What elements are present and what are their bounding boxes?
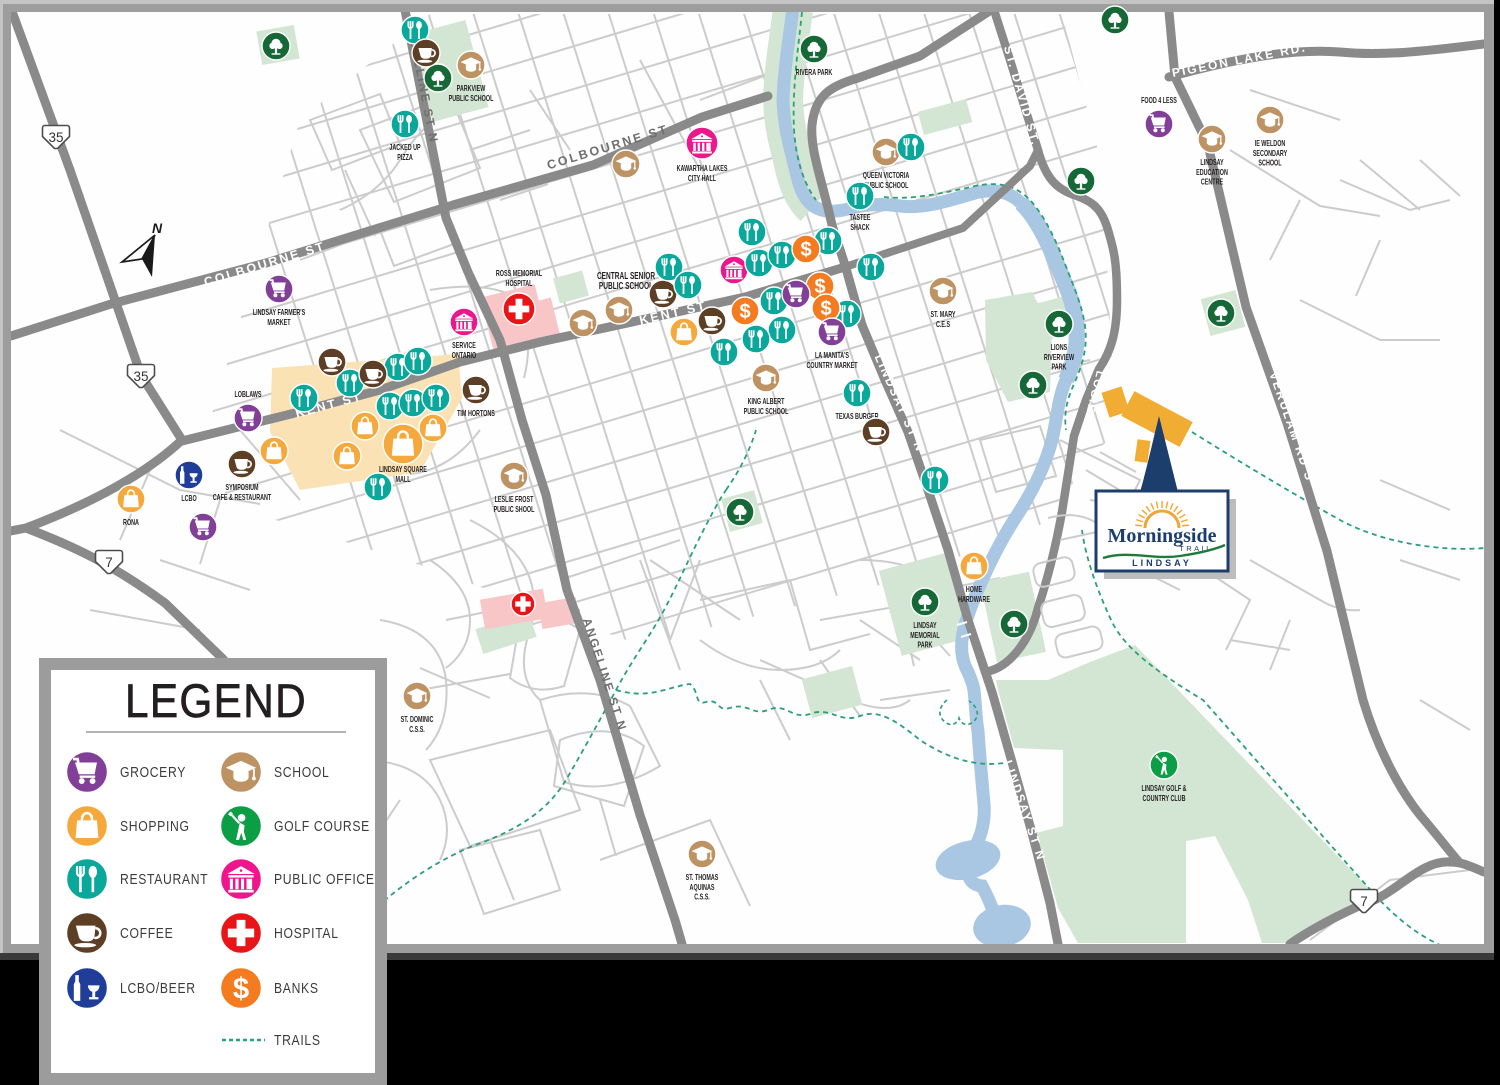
svg-text:PUBLIC OFFICE: PUBLIC OFFICE — [274, 871, 375, 887]
svg-text:ST. THOMAS: ST. THOMAS — [686, 873, 719, 883]
svg-text:ST. MARY: ST. MARY — [930, 310, 955, 320]
svg-text:LINDSAY: LINDSAY — [1132, 558, 1192, 568]
svg-text:JACKED UP: JACKED UP — [389, 143, 420, 153]
svg-text:BANKS: BANKS — [274, 980, 319, 996]
svg-text:MALL: MALL — [395, 475, 410, 485]
svg-text:LINDSAY: LINDSAY — [913, 621, 936, 631]
svg-text:COUNTRY MARKET: COUNTRY MARKET — [806, 361, 858, 371]
svg-text:C.S.S.: C.S.S. — [409, 725, 425, 735]
svg-text:35: 35 — [48, 130, 63, 145]
svg-text:LINDSAY FARMER'S: LINDSAY FARMER'S — [253, 308, 306, 318]
svg-text:PUBLIC SCHOOL: PUBLIC SCHOOL — [599, 279, 654, 291]
svg-text:PARK: PARK — [918, 640, 934, 650]
svg-text:LINDSAY SQUARE: LINDSAY SQUARE — [379, 465, 427, 475]
svg-text:MEMORIAL: MEMORIAL — [910, 631, 940, 641]
svg-text:FOOD 4 LESS: FOOD 4 LESS — [1141, 96, 1177, 106]
svg-text:PUBLIC SCHOOL: PUBLIC SCHOOL — [449, 94, 494, 104]
svg-text:$: $ — [820, 298, 831, 320]
svg-text:SERVICE: SERVICE — [452, 341, 476, 351]
svg-text:C.S.S.: C.S.S. — [694, 892, 710, 902]
svg-text:LIONS: LIONS — [1051, 343, 1068, 353]
svg-text:PUBLIC SCHOOL: PUBLIC SCHOOL — [744, 407, 789, 417]
svg-text:$: $ — [233, 973, 249, 1006]
svg-text:$: $ — [800, 239, 811, 261]
svg-text:QUEEN VICTORIA: QUEEN VICTORIA — [863, 171, 909, 181]
svg-text:LCBO/BEER: LCBO/BEER — [120, 980, 196, 996]
svg-text:N: N — [152, 220, 163, 236]
svg-text:HOSPITAL: HOSPITAL — [506, 279, 533, 289]
svg-text:AQUINAS: AQUINAS — [690, 883, 715, 893]
svg-text:HOSPITAL: HOSPITAL — [274, 925, 339, 941]
svg-text:$: $ — [739, 301, 750, 323]
svg-text:RIVERVIEW: RIVERVIEW — [1044, 353, 1074, 363]
svg-text:SECONDARY: SECONDARY — [1253, 149, 1288, 159]
svg-text:COFFEE: COFFEE — [120, 925, 173, 941]
svg-text:HARDWARE: HARDWARE — [958, 595, 990, 605]
svg-text:PIZZA: PIZZA — [397, 153, 413, 163]
svg-text:LEGEND: LEGEND — [125, 676, 307, 728]
svg-text:GROCERY: GROCERY — [120, 764, 186, 780]
svg-text:LESLIE FROST: LESLIE FROST — [495, 495, 534, 505]
svg-text:CAFE & RESTAURANT: CAFE & RESTAURANT — [213, 493, 272, 503]
svg-text:PARKVIEW: PARKVIEW — [457, 84, 486, 94]
svg-text:PUBLIC SHOOL: PUBLIC SHOOL — [494, 505, 535, 515]
svg-text:RIVERA PARK: RIVERA PARK — [796, 68, 833, 78]
svg-text:SHACK: SHACK — [850, 223, 870, 233]
svg-text:RESTAURANT: RESTAURANT — [120, 871, 208, 887]
svg-text:TASTEE: TASTEE — [850, 213, 871, 223]
svg-text:COUNTRY CLUB: COUNTRY CLUB — [1143, 794, 1186, 804]
svg-text:ONTARIO: ONTARIO — [452, 351, 477, 361]
svg-text:TIM HORTONS: TIM HORTONS — [457, 409, 495, 419]
svg-text:MARKET: MARKET — [267, 318, 291, 328]
svg-text:SCHOOL: SCHOOL — [1258, 158, 1282, 168]
svg-text:KAWARTHA LAKES: KAWARTHA LAKES — [677, 164, 728, 174]
svg-text:ROSS MEMORIAL: ROSS MEMORIAL — [496, 269, 543, 279]
svg-text:7: 7 — [105, 555, 113, 570]
svg-text:LA MANITA'S: LA MANITA'S — [815, 351, 849, 361]
svg-text:RONA: RONA — [123, 518, 139, 528]
svg-text:7: 7 — [1360, 894, 1368, 909]
svg-text:35: 35 — [133, 369, 148, 384]
svg-text:IE WELDON: IE WELDON — [1255, 139, 1286, 149]
svg-text:EDUCATION: EDUCATION — [1196, 168, 1228, 178]
svg-text:TRAILS: TRAILS — [274, 1032, 321, 1048]
svg-text:HOME: HOME — [966, 585, 982, 595]
svg-text:LCBO: LCBO — [181, 494, 197, 504]
svg-text:CENTRE: CENTRE — [1201, 177, 1223, 187]
svg-text:LOBLAWS: LOBLAWS — [234, 390, 261, 400]
svg-text:ST. DOMINIC: ST. DOMINIC — [401, 715, 434, 725]
svg-text:LINDSAY: LINDSAY — [1200, 158, 1223, 168]
svg-text:CITY HALL: CITY HALL — [688, 174, 717, 184]
svg-text:KING ALBERT: KING ALBERT — [748, 397, 785, 407]
svg-text:LINDSAY GOLF &: LINDSAY GOLF & — [1141, 784, 1186, 794]
svg-text:GOLF COURSE: GOLF COURSE — [274, 818, 370, 834]
svg-text:SHOPPING: SHOPPING — [120, 818, 190, 834]
svg-text:PARK: PARK — [1052, 362, 1068, 372]
svg-text:SYMPOSIUM: SYMPOSIUM — [225, 483, 258, 493]
svg-text:SCHOOL: SCHOOL — [274, 764, 329, 780]
svg-text:C.E.S: C.E.S — [936, 320, 950, 330]
